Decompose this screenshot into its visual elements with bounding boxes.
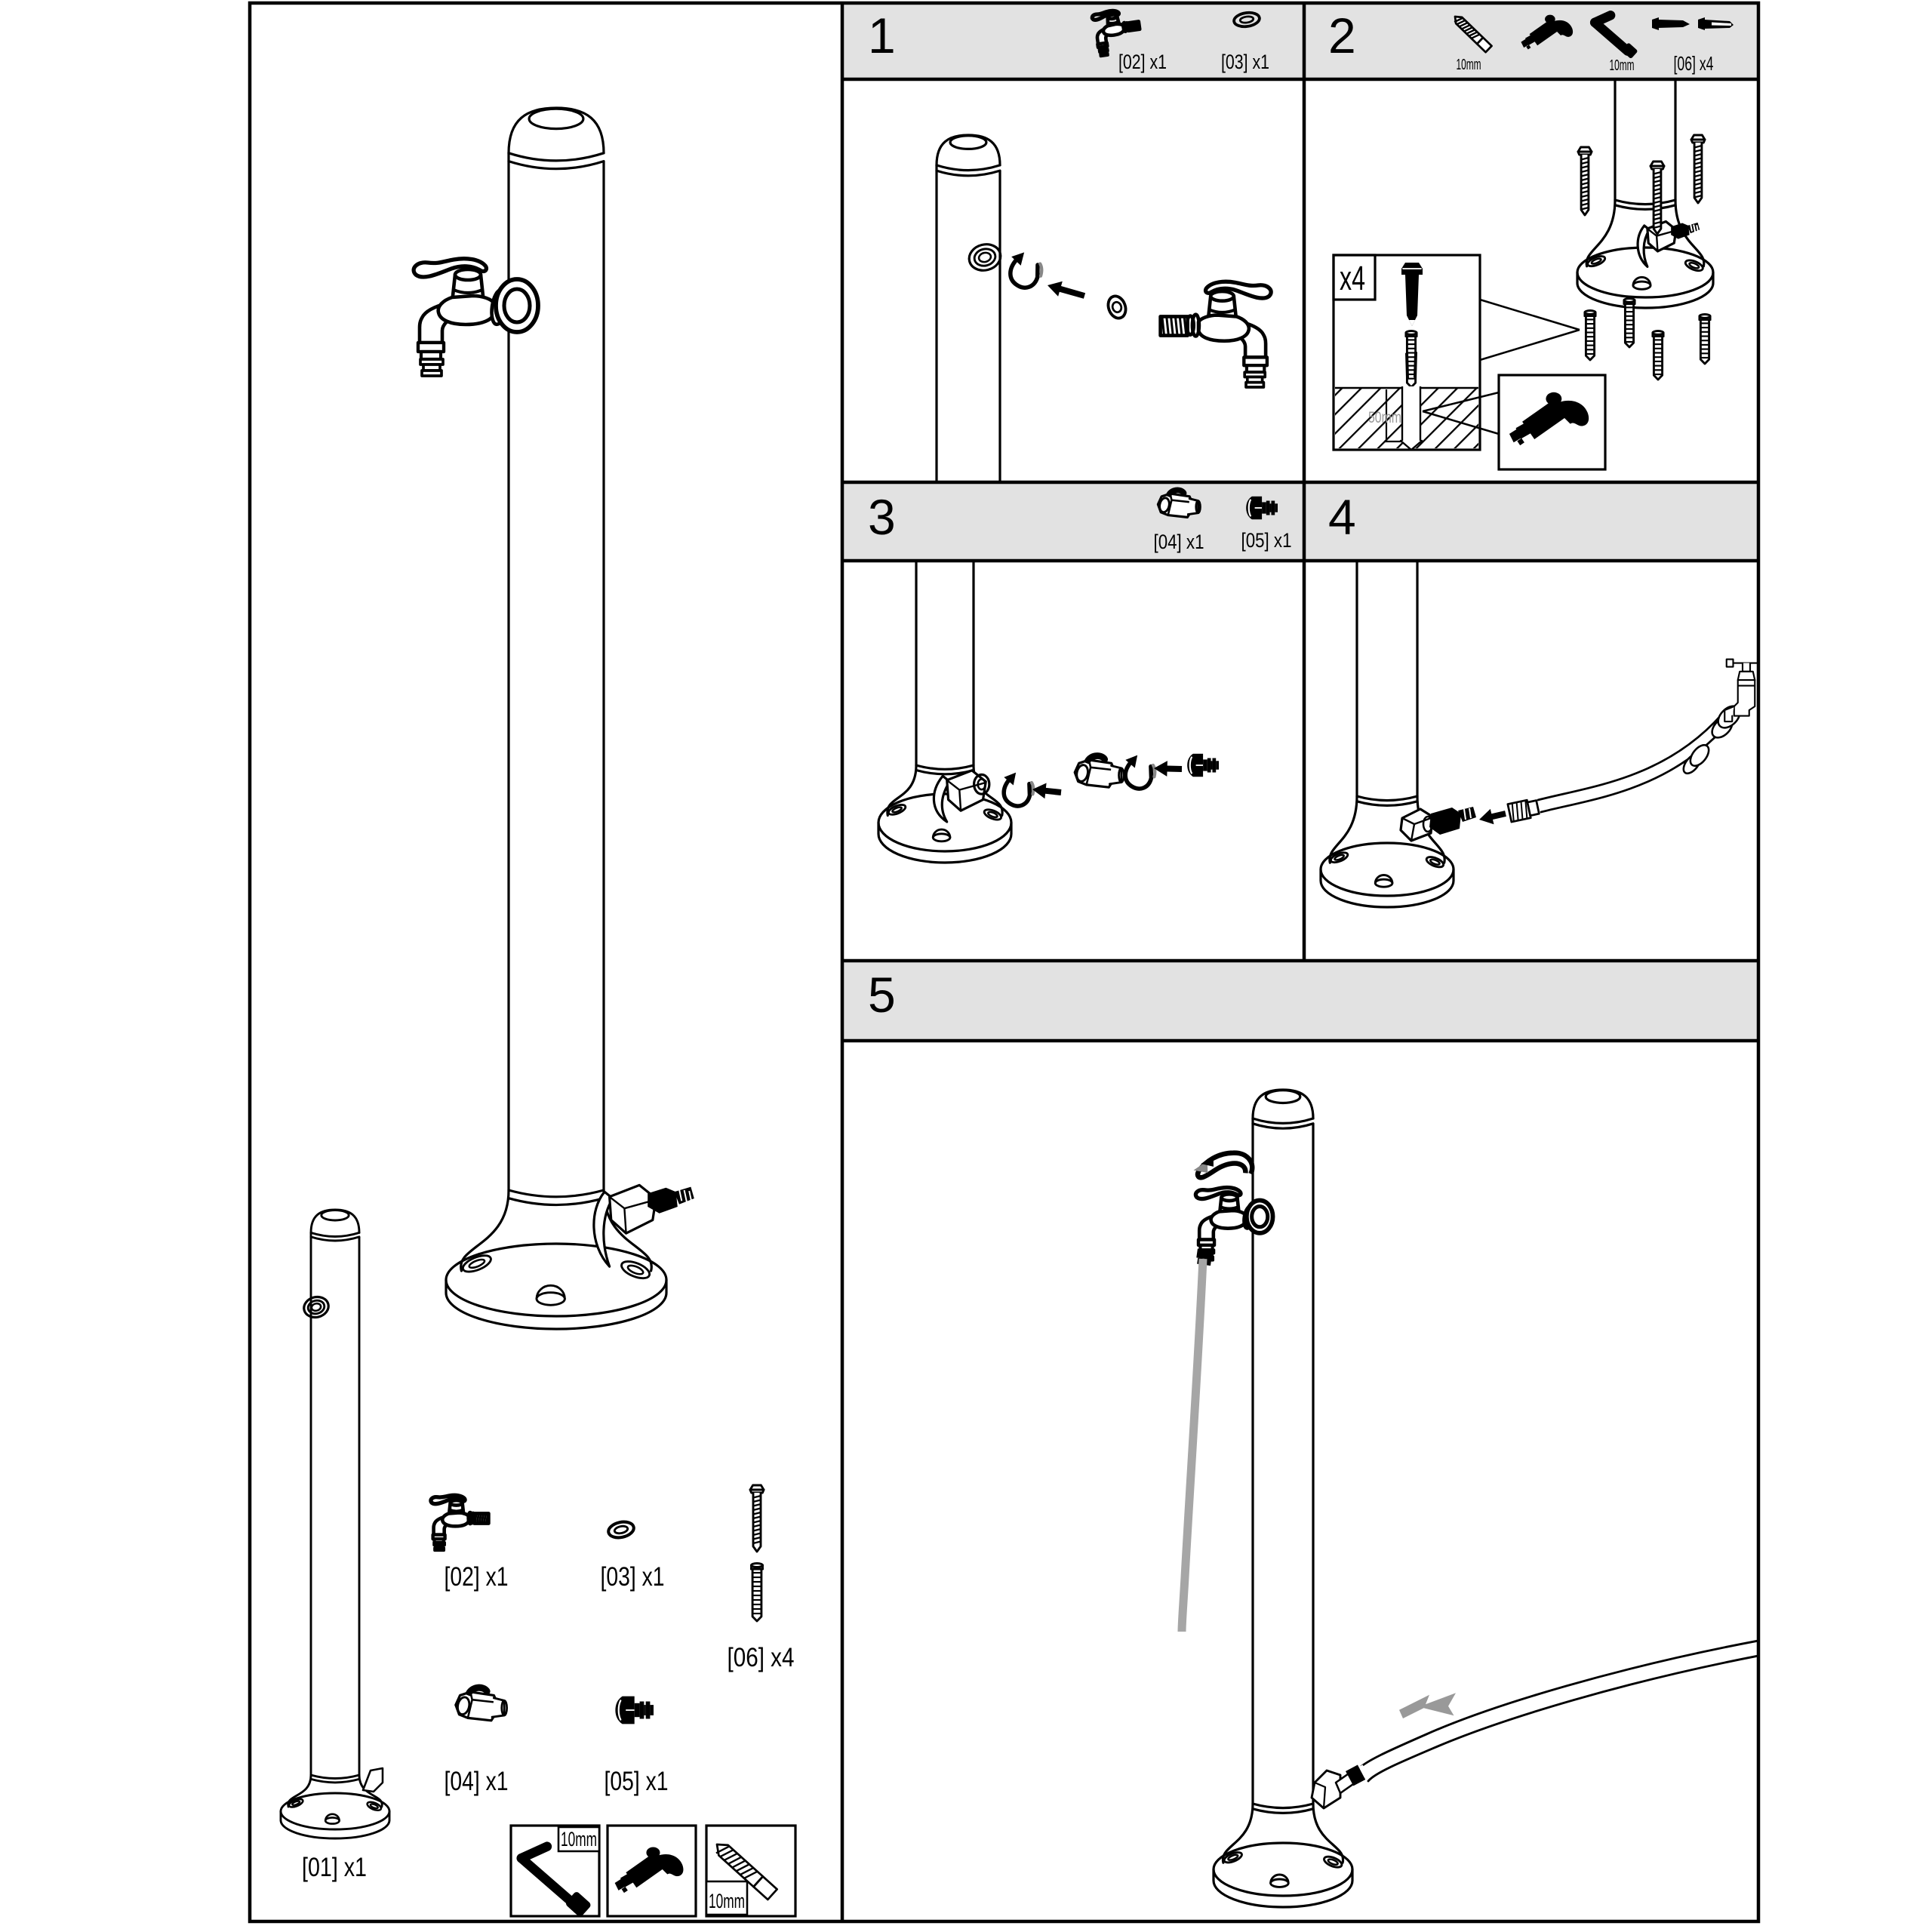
svg-text:10mm: 10mm (1457, 57, 1481, 73)
svg-text:x4: x4 (1340, 259, 1365, 297)
svg-text:[01] x1: [01] x1 (302, 1853, 367, 1882)
svg-text:4: 4 (1328, 489, 1356, 545)
svg-text:[02] x1: [02] x1 (445, 1562, 509, 1592)
svg-text:[06] x4: [06] x4 (728, 1643, 795, 1672)
svg-text:10mm: 10mm (1610, 57, 1635, 74)
svg-text:[04] x1: [04] x1 (1154, 531, 1204, 553)
svg-text:3: 3 (868, 489, 896, 545)
svg-text:[06] x4: [06] x4 (1674, 52, 1714, 75)
svg-text:[05] x1: [05] x1 (1241, 529, 1292, 552)
svg-text:[05] x1: [05] x1 (605, 1767, 669, 1796)
svg-text:[03] x1: [03] x1 (601, 1562, 665, 1592)
svg-text:[02] x1: [02] x1 (1118, 51, 1167, 73)
svg-text:50mm: 50mm (1368, 409, 1401, 426)
svg-text:10mm: 10mm (709, 1890, 745, 1912)
svg-text:2: 2 (1328, 8, 1356, 63)
svg-text:10mm: 10mm (561, 1828, 597, 1850)
svg-text:5: 5 (868, 967, 896, 1023)
svg-text:1: 1 (868, 8, 896, 63)
svg-text:[04] x1: [04] x1 (445, 1767, 509, 1796)
svg-text:[03] x1: [03] x1 (1221, 51, 1269, 73)
